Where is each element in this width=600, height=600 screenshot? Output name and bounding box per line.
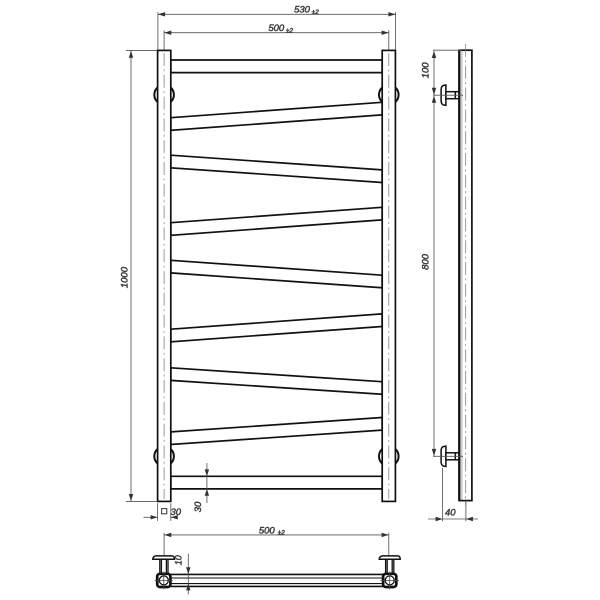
svg-text:500: 500 bbox=[259, 526, 276, 537]
svg-text:±2: ±2 bbox=[286, 28, 293, 35]
svg-text:530: 530 bbox=[294, 5, 311, 16]
svg-text:±2: ±2 bbox=[278, 530, 285, 537]
svg-text:100: 100 bbox=[420, 62, 431, 79]
svg-text:800: 800 bbox=[420, 253, 431, 270]
svg-text:10: 10 bbox=[174, 555, 184, 565]
svg-text:1000: 1000 bbox=[120, 266, 131, 288]
svg-text:±2: ±2 bbox=[312, 9, 319, 16]
svg-text:30: 30 bbox=[171, 507, 182, 518]
svg-text:30: 30 bbox=[193, 501, 204, 512]
svg-text:500: 500 bbox=[268, 23, 285, 34]
svg-text:40: 40 bbox=[445, 508, 456, 519]
